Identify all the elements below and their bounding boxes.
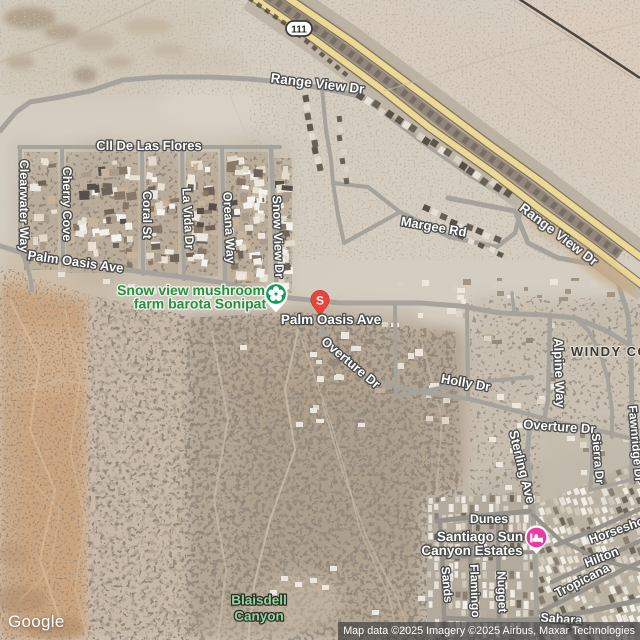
svg-text:Cherry Cove: Cherry Cove (60, 167, 74, 241)
svg-text:Nugget: Nugget (494, 571, 509, 613)
svg-text:Canyon Estates: Canyon Estates (421, 543, 522, 558)
svg-text:Clearwater Way: Clearwater Way (17, 160, 31, 253)
svg-text:WINDY CO: WINDY CO (571, 344, 640, 359)
svg-text:Dunes: Dunes (470, 512, 508, 526)
svg-text:Canyon: Canyon (234, 609, 284, 624)
svg-text:farm barota Sonipat: farm barota Sonipat (134, 296, 267, 312)
svg-text:Cll De Las Flores: Cll De Las Flores (96, 138, 201, 153)
svg-text:Alpine Way: Alpine Way (551, 338, 568, 409)
svg-text:Blaisdell: Blaisdell (231, 593, 287, 608)
svg-text:S: S (316, 294, 324, 308)
svg-text:111: 111 (291, 25, 307, 36)
svg-text:Flamingo: Flamingo (467, 564, 483, 618)
svg-text:Palm Oasis Ave: Palm Oasis Ave (281, 312, 382, 327)
svg-text:Santiago Sun: Santiago Sun (437, 529, 523, 544)
svg-text:Snow View Dr: Snow View Dr (270, 195, 287, 278)
svg-text:Coral St: Coral St (140, 191, 154, 240)
